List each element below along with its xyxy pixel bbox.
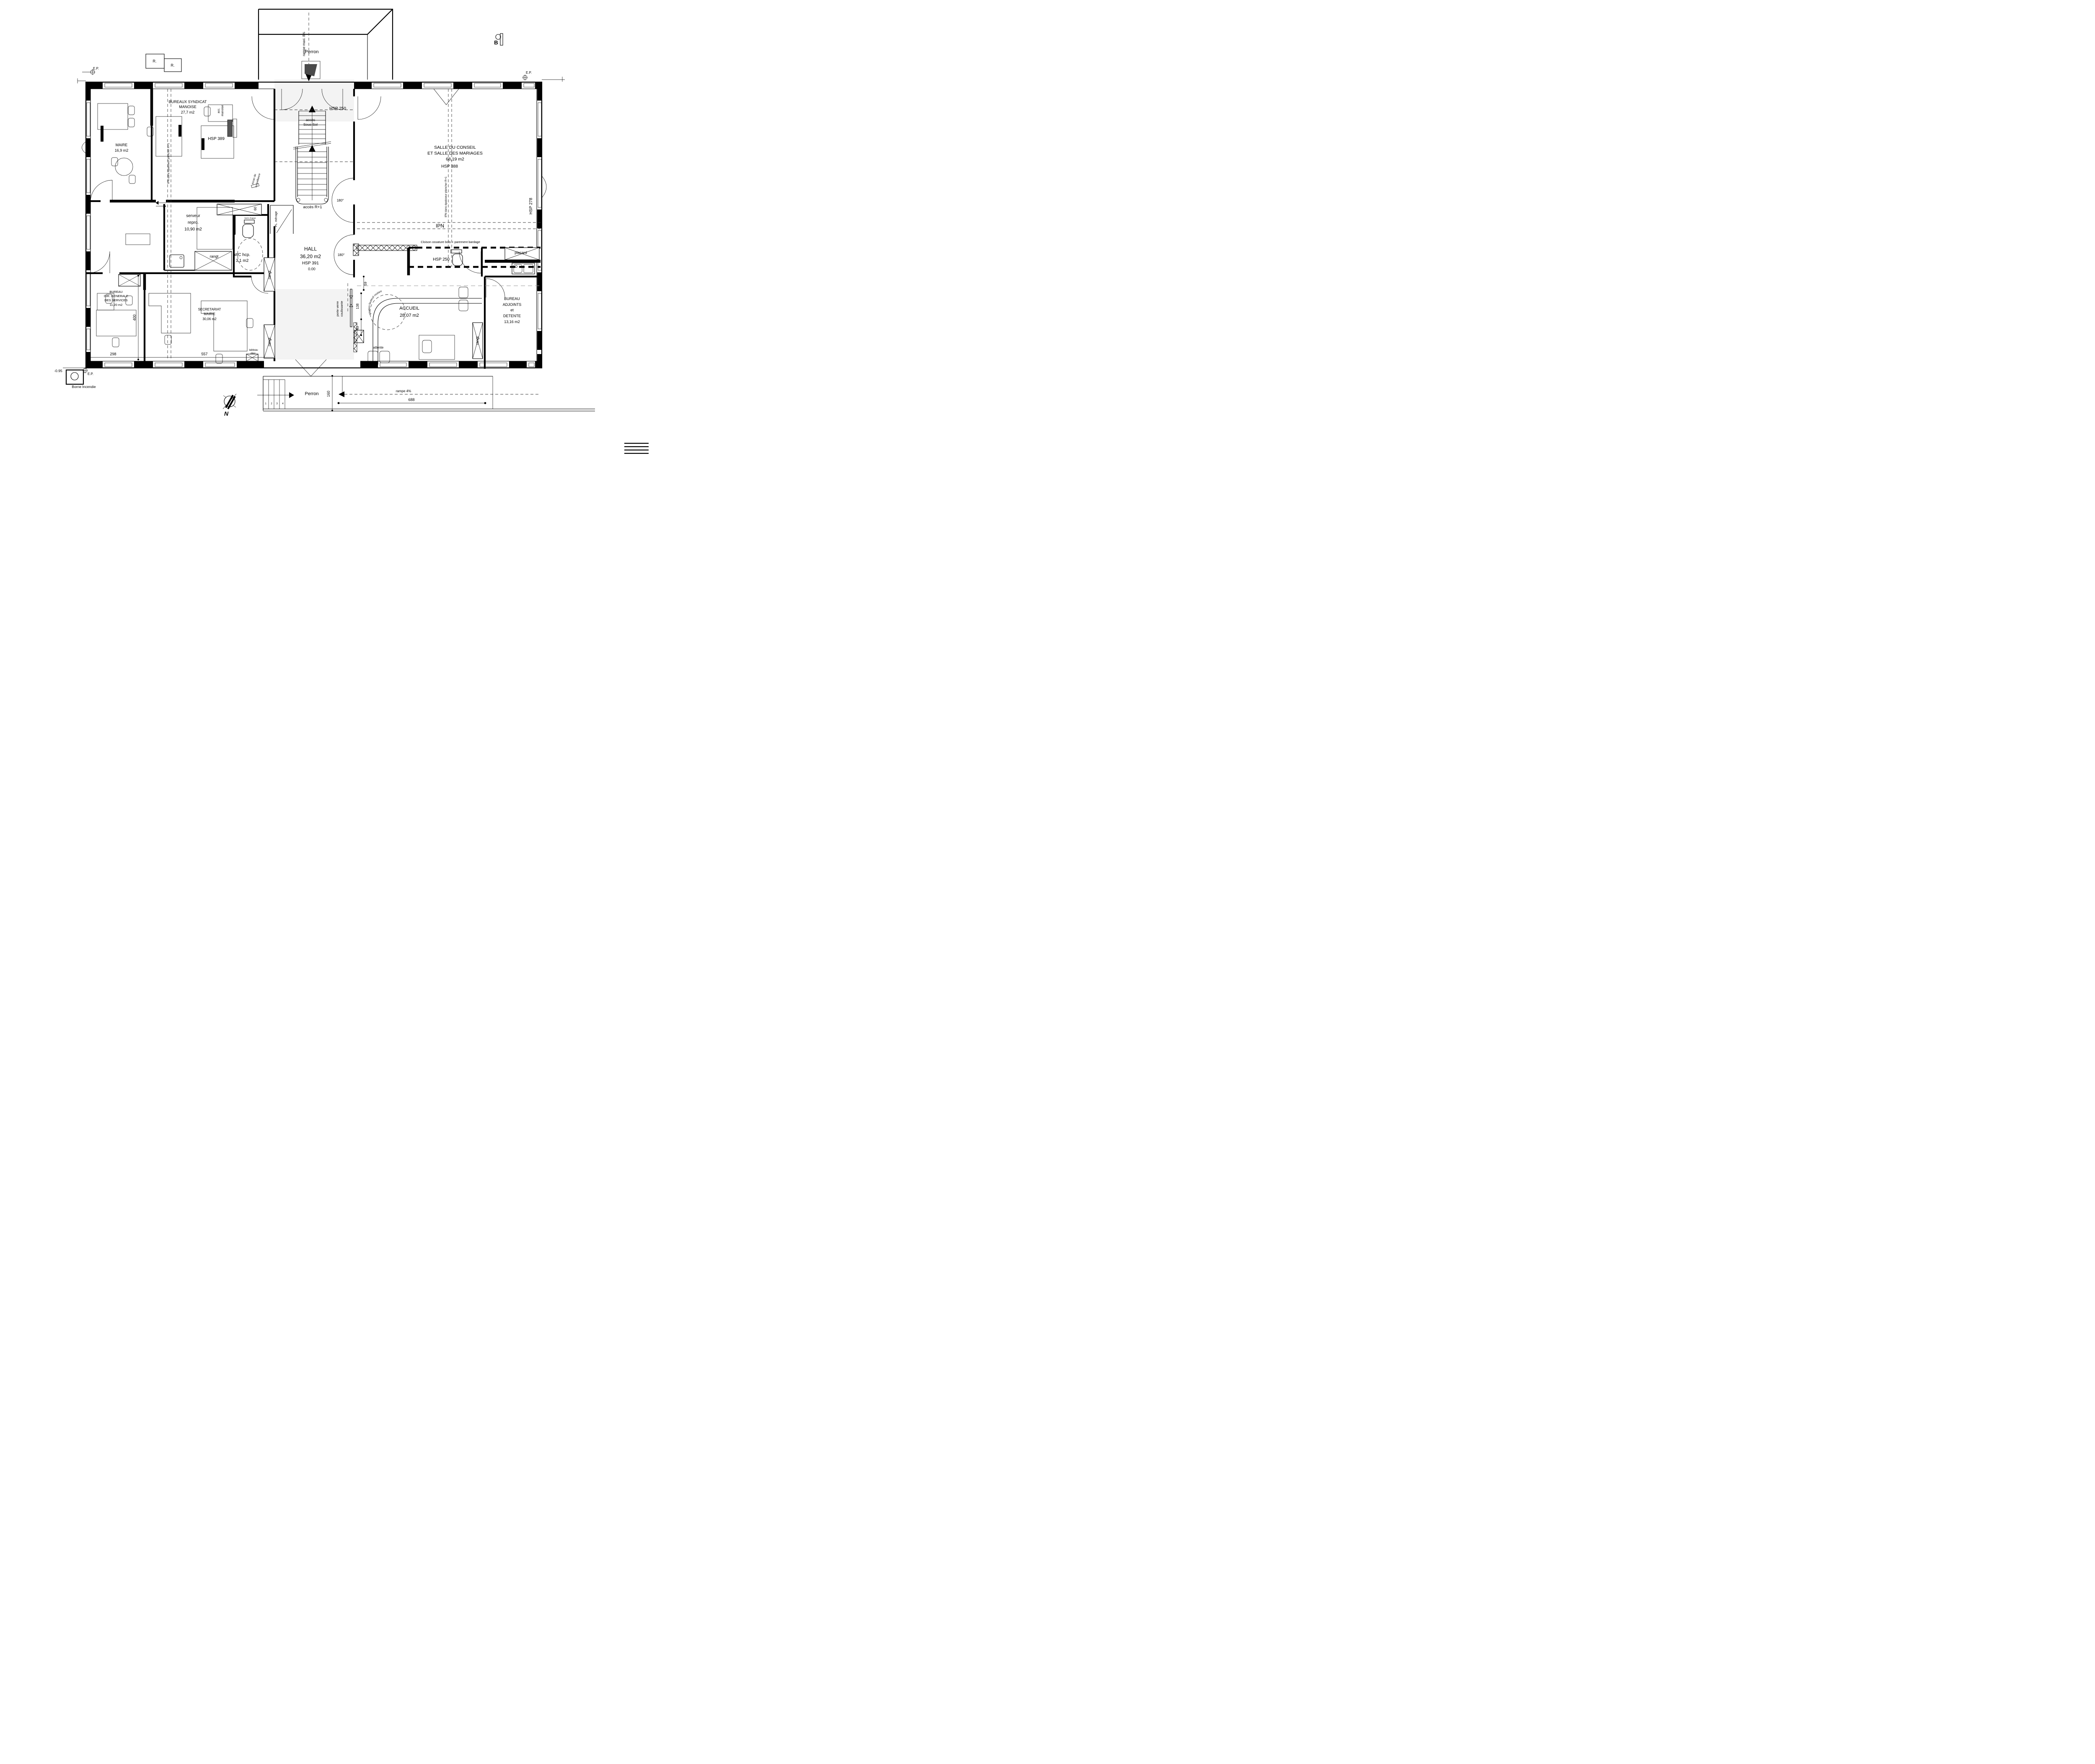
room-syndicat-1: BUREAUX SYNDICAT xyxy=(169,100,207,104)
north-compass-icon xyxy=(223,394,236,409)
room-wc-hcp-2: 3,1 m2 xyxy=(236,259,249,263)
label-b-marker: B xyxy=(494,39,498,46)
label-ep-topleft: E.P. xyxy=(93,67,99,70)
label-perron-top: Perron xyxy=(305,49,318,54)
label-hsp389: HSP 389 xyxy=(208,137,225,141)
label-acces-ss-1: accès xyxy=(306,118,315,122)
label-pl-menage: PL. ménage xyxy=(275,211,278,227)
room-accueil-2: 28,07 m2 xyxy=(400,313,419,318)
dim-160: 160 xyxy=(326,391,331,397)
label-hsp250-wc: HSP 250 xyxy=(433,257,450,262)
label-ep-topright: E.P. xyxy=(526,71,532,75)
label-acc-manoise-2: manoise xyxy=(221,105,224,116)
room-syndicat-2: MANOISE xyxy=(179,105,197,109)
dim-298: 298 xyxy=(110,352,116,356)
label-ipn: IPN xyxy=(436,223,444,229)
label-tableau-2: élec. xyxy=(251,352,256,355)
label-porte-verre-2: coulissante xyxy=(340,301,344,317)
room-adjoints-3: et xyxy=(510,308,514,312)
label-rangt-b: rangt xyxy=(267,270,272,279)
step-3: 3 xyxy=(276,403,278,405)
label-hsp278: HSP 278 xyxy=(529,198,533,215)
room-secretariat-3: 30,06 m2 xyxy=(202,317,217,321)
room-accueil-1: ACCUEIL xyxy=(399,306,419,311)
dim-60: 60 xyxy=(253,207,257,210)
label-hsp391: HSP 391 xyxy=(302,261,319,266)
label-rangt-c: rangt xyxy=(267,337,272,346)
label-perron-bottom: Perron xyxy=(305,391,318,396)
label-rampe-maxi: rampe maxi. 8% xyxy=(302,32,306,56)
room-adjoints-2: ADJOINTS xyxy=(503,303,522,307)
room-adjoints-4: DETENTE xyxy=(503,314,521,318)
label-rangt-d: rangt xyxy=(475,336,479,345)
dim-400: 400 xyxy=(132,314,137,321)
room-serveur-3: 10,90 m2 xyxy=(184,227,202,232)
label-attente: attente xyxy=(373,346,384,349)
step-2: 2 xyxy=(271,403,272,405)
porch-top xyxy=(259,9,393,81)
dim-43: 43 xyxy=(356,326,360,330)
label-hsp388: HSP 388 xyxy=(441,164,458,169)
label-rampe4: rampe 4% xyxy=(396,389,411,393)
label-placard: placard xyxy=(515,251,527,255)
label-cloison: Cloison ossature bois + parement bardage xyxy=(421,240,480,244)
label-hall-level: 0.00 xyxy=(308,267,316,271)
label-r1: R. xyxy=(153,59,157,63)
room-hall-2: 36,20 m2 xyxy=(300,253,321,259)
floor-plan-canvas: Perron rampe maxi. 8% E.P. E.P. R. R. B … xyxy=(0,0,657,464)
label-acces-r1: accès R+1 xyxy=(303,205,322,210)
label-rangt-a: rangt xyxy=(210,254,219,259)
dim-138: 138 xyxy=(356,303,360,309)
room-adjoints-1: BUREAU xyxy=(504,297,520,301)
label-ep-bottom: E.P. xyxy=(88,372,93,376)
room-dgs-3: DES SERVICES xyxy=(104,298,127,302)
label-ipn-note-right: IPN dans épaisseur plancher R+1 xyxy=(445,176,447,217)
label-north: N xyxy=(224,410,229,417)
room-maire-2: 16,9 m2 xyxy=(115,148,129,153)
room-salle-1: SALLE DU CONSEIL xyxy=(434,145,476,150)
dim-557: 557 xyxy=(201,352,207,356)
room-salle-3: 68,19 m2 xyxy=(446,157,464,162)
site-works xyxy=(63,77,649,453)
label-acc-manoise-1: acc. xyxy=(217,108,220,114)
label-borne: Borne Incendie xyxy=(72,385,96,389)
label-hsp250-top: HSP 250 xyxy=(329,106,346,111)
room-dgs-1: BUREAU xyxy=(109,290,122,294)
dim-level: -0.95 xyxy=(54,369,62,373)
label-giration: giration fauteuil roulant xyxy=(368,290,382,315)
label-180-a: 180° xyxy=(337,199,344,202)
room-dgs-4: 11,20 m2 xyxy=(110,303,123,307)
room-adjoints-5: 13,16 m2 xyxy=(504,320,520,324)
room-maire-1: MAIRE xyxy=(116,143,128,147)
room-salle-2: ET SALLE DES MARIAGES xyxy=(427,151,483,156)
room-serveur-2: repro. xyxy=(188,220,199,225)
label-tableau-1: tableau xyxy=(249,349,258,352)
room-serveur-1: serveur xyxy=(186,214,200,218)
accueil-counter xyxy=(370,295,482,365)
room-hall-1: HALL xyxy=(304,246,317,252)
label-r2: R. xyxy=(171,63,175,67)
label-barre-appui: barre d'appui xyxy=(245,217,256,219)
room-syndicat-3: 27,7 m2 xyxy=(181,110,195,114)
room-secretariat-1: SECRETARIAT xyxy=(198,308,221,311)
room-wc-hcp-1: WC hcp. xyxy=(234,253,250,257)
dim-59: 59 xyxy=(364,282,367,285)
room-secretariat-2: MAIRIE xyxy=(204,312,215,316)
room-dgs-2: DIR. GENERALE xyxy=(104,294,128,298)
step-1: 1 xyxy=(265,403,266,405)
label-acces-ss-2: Sous Sol xyxy=(303,122,318,127)
dim-688: 688 xyxy=(408,398,414,402)
label-180-b: 180° xyxy=(338,253,345,257)
step-4: 4 xyxy=(282,403,284,405)
label-porte-verre-1: porte verre xyxy=(336,301,339,316)
label-ipn-note-left: IPN dans épaisseur plancher R+1 xyxy=(167,143,170,184)
